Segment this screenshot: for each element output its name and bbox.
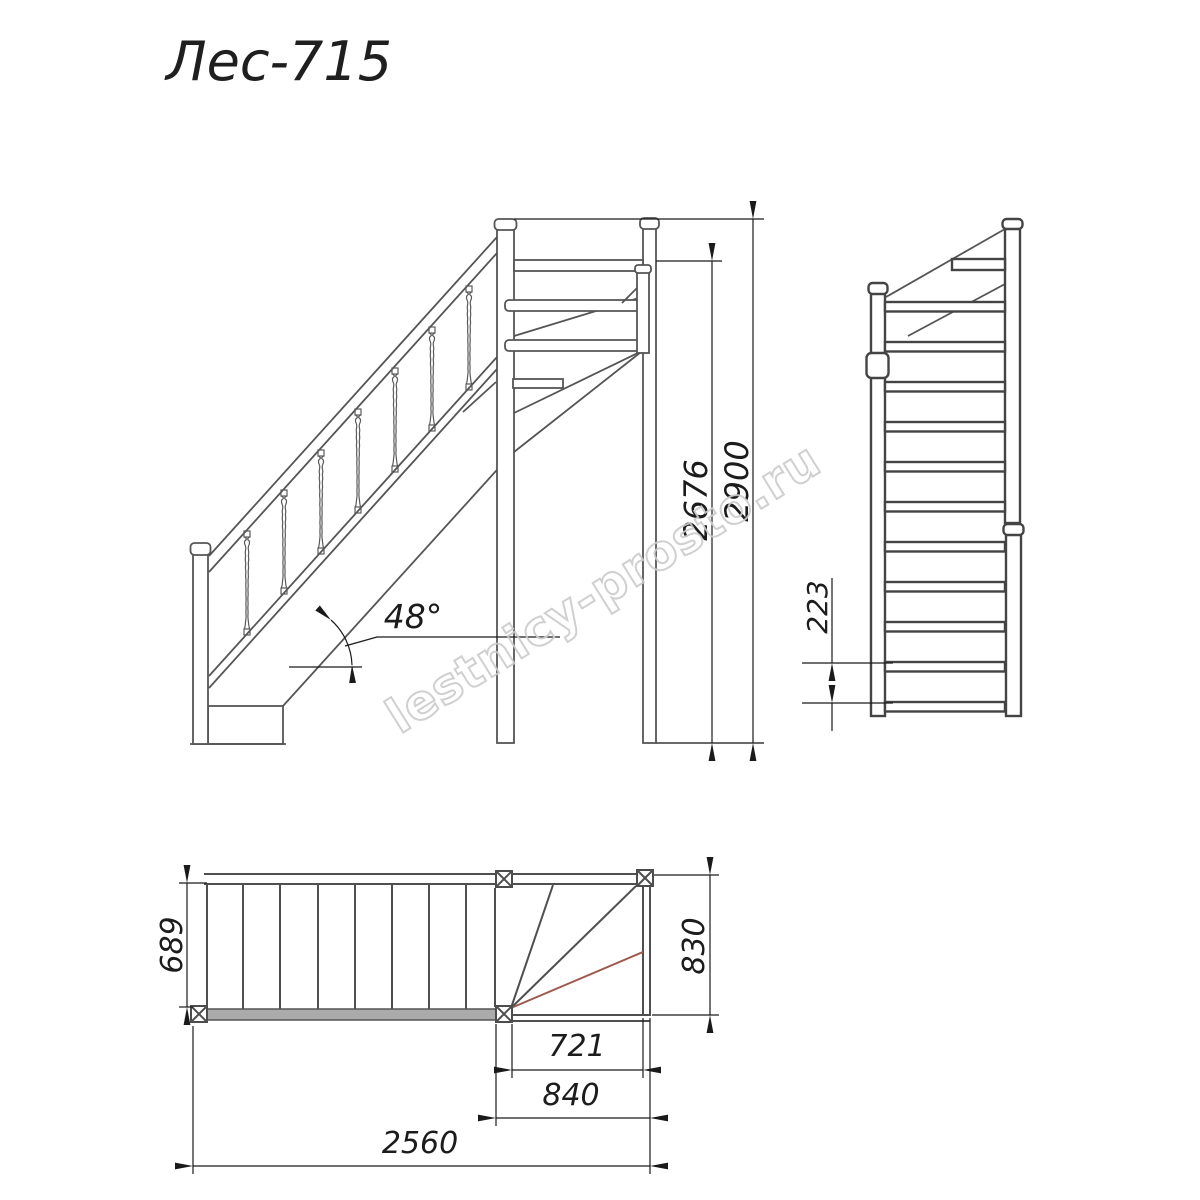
dim-689: 689	[155, 883, 207, 1007]
stringer-foot	[208, 706, 283, 744]
handrail-bottom-edge	[209, 253, 497, 572]
landing-post-cap	[640, 218, 659, 229]
front-left-post-cap	[869, 283, 888, 294]
front-right-post-upper	[1005, 228, 1020, 523]
front-right-post-cap	[1003, 219, 1023, 229]
front-treads	[885, 302, 1005, 712]
winder-tread-edge	[513, 379, 563, 388]
plan-newel-posts	[191, 870, 653, 1022]
dim-830: 830	[652, 875, 719, 1015]
newel-top-middle	[496, 871, 512, 887]
plan-fan-accent-line	[511, 952, 643, 1008]
dimensions: 2676 2900 48° 223 689 830	[155, 219, 893, 1174]
bottom-newel-post	[193, 554, 208, 744]
bottom-newel-cap	[191, 543, 211, 555]
front-right-post-lower-cap	[1004, 524, 1024, 535]
plan-bottom-stringer	[193, 1009, 497, 1020]
shoe-rail-bottom	[209, 369, 497, 688]
watermark-text: lestnicy-prosto.ru	[377, 432, 831, 745]
balusters	[244, 286, 472, 635]
front-top-rail-end	[952, 259, 1005, 270]
dim-label-223: 223	[801, 580, 834, 633]
landing-rail-3	[505, 340, 643, 351]
stringer-bottom-edge-winder	[514, 352, 641, 452]
dim-label-840: 840	[542, 1078, 599, 1113]
dim-721: 721	[512, 1018, 643, 1078]
front-right-post-lower	[1006, 534, 1021, 716]
landing-rail-1	[514, 260, 643, 271]
dim-label-2560: 2560	[382, 1126, 458, 1161]
dim-label-721: 721	[548, 1029, 605, 1064]
handrail-top-edge	[209, 237, 497, 556]
front-view	[867, 219, 1024, 716]
technical-drawing: 2676 2900 48° 223 689 830	[0, 0, 1200, 1200]
drawing-title: Лес-715	[164, 30, 392, 93]
dim-label-830: 830	[677, 917, 712, 974]
landing-plank-cap	[635, 265, 651, 273]
stair-drawing-page: 2676 2900 48° 223 689 830	[0, 0, 1200, 1200]
slope-angle-label: 48°	[384, 597, 443, 636]
winder-edge-left	[463, 382, 496, 412]
dim-label-689: 689	[155, 916, 190, 973]
plan-winder-fan	[511, 885, 643, 1008]
newel-bottom-center	[496, 1006, 512, 1022]
front-left-post-joint	[867, 353, 889, 378]
newel-bottom-left	[191, 1006, 207, 1022]
top-newel-cap	[495, 219, 517, 230]
plan-view	[191, 870, 653, 1022]
plan-tread-lines	[243, 884, 466, 1009]
landing-plank	[637, 270, 649, 353]
newel-top-right	[637, 870, 653, 886]
